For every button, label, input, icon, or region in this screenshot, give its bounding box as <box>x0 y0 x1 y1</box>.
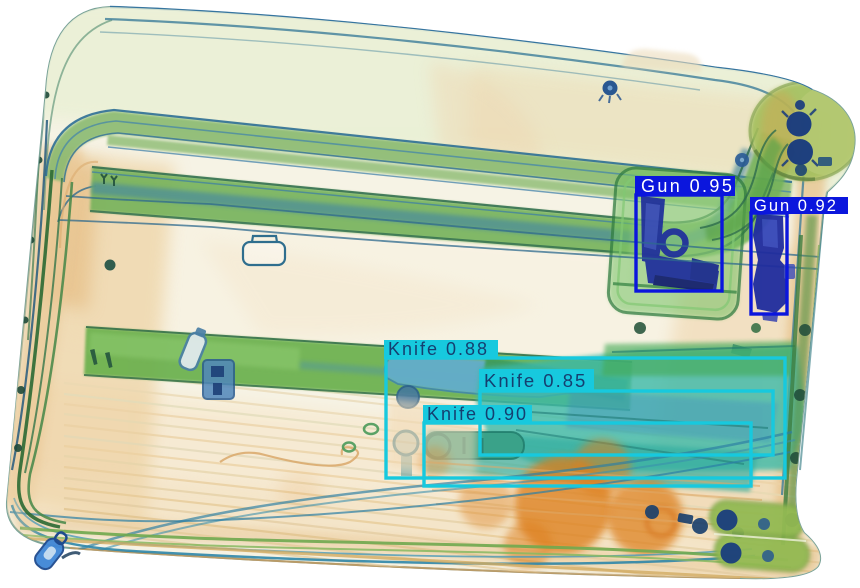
svg-text:Gun 0.95: Gun 0.95 <box>641 176 734 196</box>
svg-text:Knife 0.90: Knife 0.90 <box>427 404 528 424</box>
svg-text:Knife 0.85: Knife 0.85 <box>484 370 587 391</box>
svg-text:Gun 0.92: Gun 0.92 <box>754 197 838 215</box>
svg-text:Knife 0.88: Knife 0.88 <box>388 339 489 359</box>
